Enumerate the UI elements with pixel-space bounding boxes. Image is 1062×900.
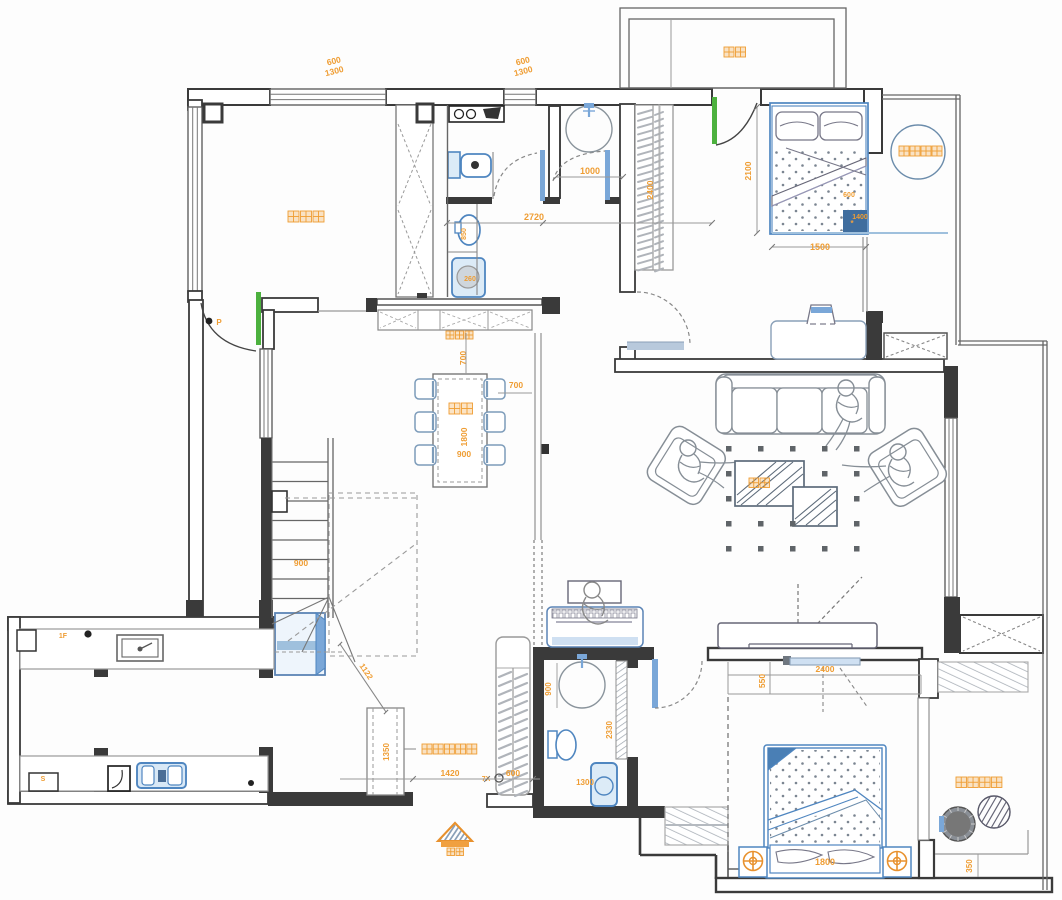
svg-text:700: 700 [509, 380, 523, 390]
svg-text:1F: 1F [59, 633, 68, 640]
svg-text:1400: 1400 [852, 214, 868, 221]
svg-text:P: P [216, 318, 222, 327]
svg-text:900: 900 [294, 558, 308, 568]
svg-text:1800: 1800 [815, 857, 835, 867]
svg-text:350: 350 [965, 859, 974, 873]
svg-text:1000: 1000 [580, 166, 600, 176]
svg-text:1300: 1300 [576, 778, 594, 787]
svg-text:600: 600 [843, 192, 855, 199]
svg-text:900: 900 [544, 682, 553, 696]
svg-text:2330: 2330 [605, 721, 614, 739]
svg-text:S: S [41, 776, 46, 783]
svg-text:2400: 2400 [645, 180, 655, 199]
svg-text:2400: 2400 [816, 664, 835, 674]
svg-text:900: 900 [457, 449, 471, 459]
svg-text:2100: 2100 [743, 161, 753, 180]
svg-text:2720: 2720 [524, 212, 544, 222]
svg-text:850: 850 [461, 228, 468, 240]
svg-text:1500: 1500 [810, 242, 830, 252]
svg-text:1800: 1800 [459, 427, 469, 446]
svg-text:550: 550 [757, 674, 767, 688]
svg-text:600: 600 [506, 768, 520, 778]
svg-text:1350: 1350 [382, 743, 391, 761]
svg-text:1420: 1420 [441, 768, 460, 778]
svg-text:260: 260 [464, 276, 476, 283]
